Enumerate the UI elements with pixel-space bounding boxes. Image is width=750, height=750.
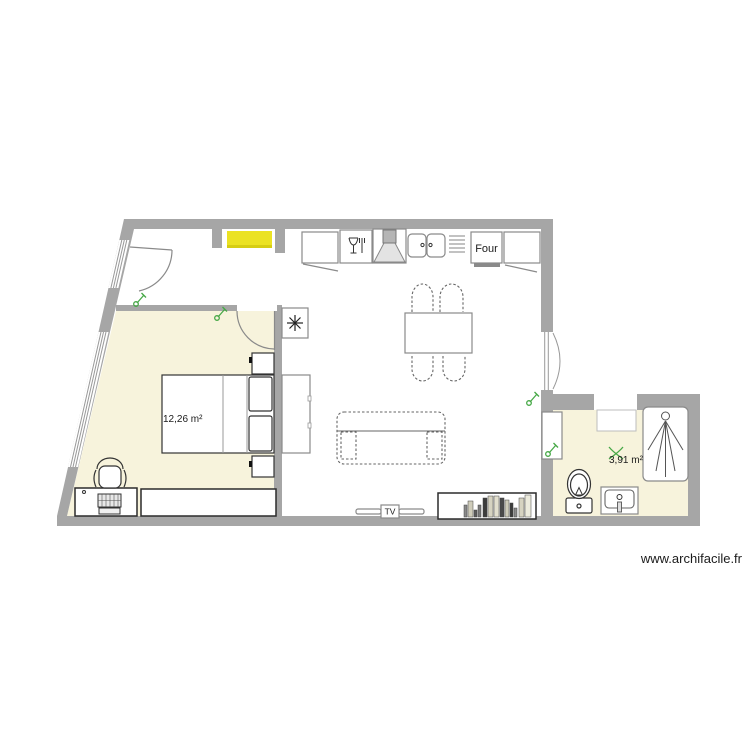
- dishwasher[interactable]: [340, 230, 372, 263]
- bathroom-area-label: 3,91 m²: [609, 455, 644, 466]
- washbasin[interactable]: [601, 487, 638, 514]
- tv-label: TV: [385, 507, 396, 517]
- shower[interactable]: [643, 407, 688, 481]
- floor-plan: Four TV: [0, 0, 750, 750]
- wall-right-upper[interactable]: [541, 229, 553, 332]
- chair-bottom-right[interactable]: [443, 356, 465, 381]
- pillow: [249, 377, 272, 411]
- kitchen-cabinet-2[interactable]: [504, 232, 540, 272]
- wardrobe-living[interactable]: [282, 375, 311, 453]
- switch-icon-entrance[interactable]: [134, 293, 146, 306]
- chair-bottom-left[interactable]: [412, 356, 433, 381]
- kitchen-cabinet-1[interactable]: [302, 232, 338, 271]
- entrance-door-swing-arc: [139, 250, 172, 291]
- wall-stub-right[interactable]: [275, 229, 285, 253]
- radiator[interactable]: [542, 412, 562, 459]
- watermark: www.archifacile.fr: [640, 551, 743, 566]
- sofa[interactable]: [337, 412, 445, 464]
- kitchen-sink[interactable]: [408, 234, 445, 257]
- wall-top[interactable]: [124, 219, 553, 229]
- oven-label: Four: [475, 243, 498, 255]
- entrance-door-leaf[interactable]: [130, 247, 172, 250]
- chair-top-left[interactable]: [412, 284, 433, 312]
- pillow: [249, 416, 272, 451]
- fridge[interactable]: [282, 308, 308, 338]
- toilet[interactable]: [566, 470, 592, 514]
- entrance-door[interactable]: [108, 240, 172, 291]
- wall-bedroom-right[interactable]: [274, 305, 282, 516]
- bedroom-area-label: 12,26 m²: [163, 414, 203, 425]
- window-swing-arc: [553, 333, 560, 389]
- chair-top-right[interactable]: [440, 284, 463, 312]
- oven[interactable]: Four: [471, 232, 502, 267]
- dish-drainer[interactable]: [449, 236, 465, 252]
- basin-tap-icon: [618, 502, 622, 512]
- nightstand-top[interactable]: [249, 353, 274, 374]
- floor-plan-canvas: Four TV: [0, 0, 750, 750]
- dining-table[interactable]: [405, 313, 472, 353]
- wall-bathroom-right[interactable]: [688, 394, 700, 526]
- bathroom-door-panel[interactable]: [597, 410, 636, 431]
- desk[interactable]: [75, 488, 137, 516]
- bookshelf[interactable]: [438, 493, 536, 519]
- wall-bottom[interactable]: [57, 516, 700, 526]
- selected-furniture-yellow[interactable]: [227, 231, 272, 248]
- wardrobe-bedroom[interactable]: [141, 489, 276, 516]
- living-window[interactable]: [541, 332, 560, 390]
- switch-icon-bathroom-corner[interactable]: [527, 392, 539, 405]
- wall-stub-left[interactable]: [212, 229, 222, 248]
- oven-handle: [474, 263, 500, 267]
- bathroom-opening[interactable]: [594, 394, 637, 431]
- extractor-hood[interactable]: [373, 229, 406, 263]
- computer-icon: [98, 494, 121, 514]
- nightstand-bottom[interactable]: [249, 456, 274, 477]
